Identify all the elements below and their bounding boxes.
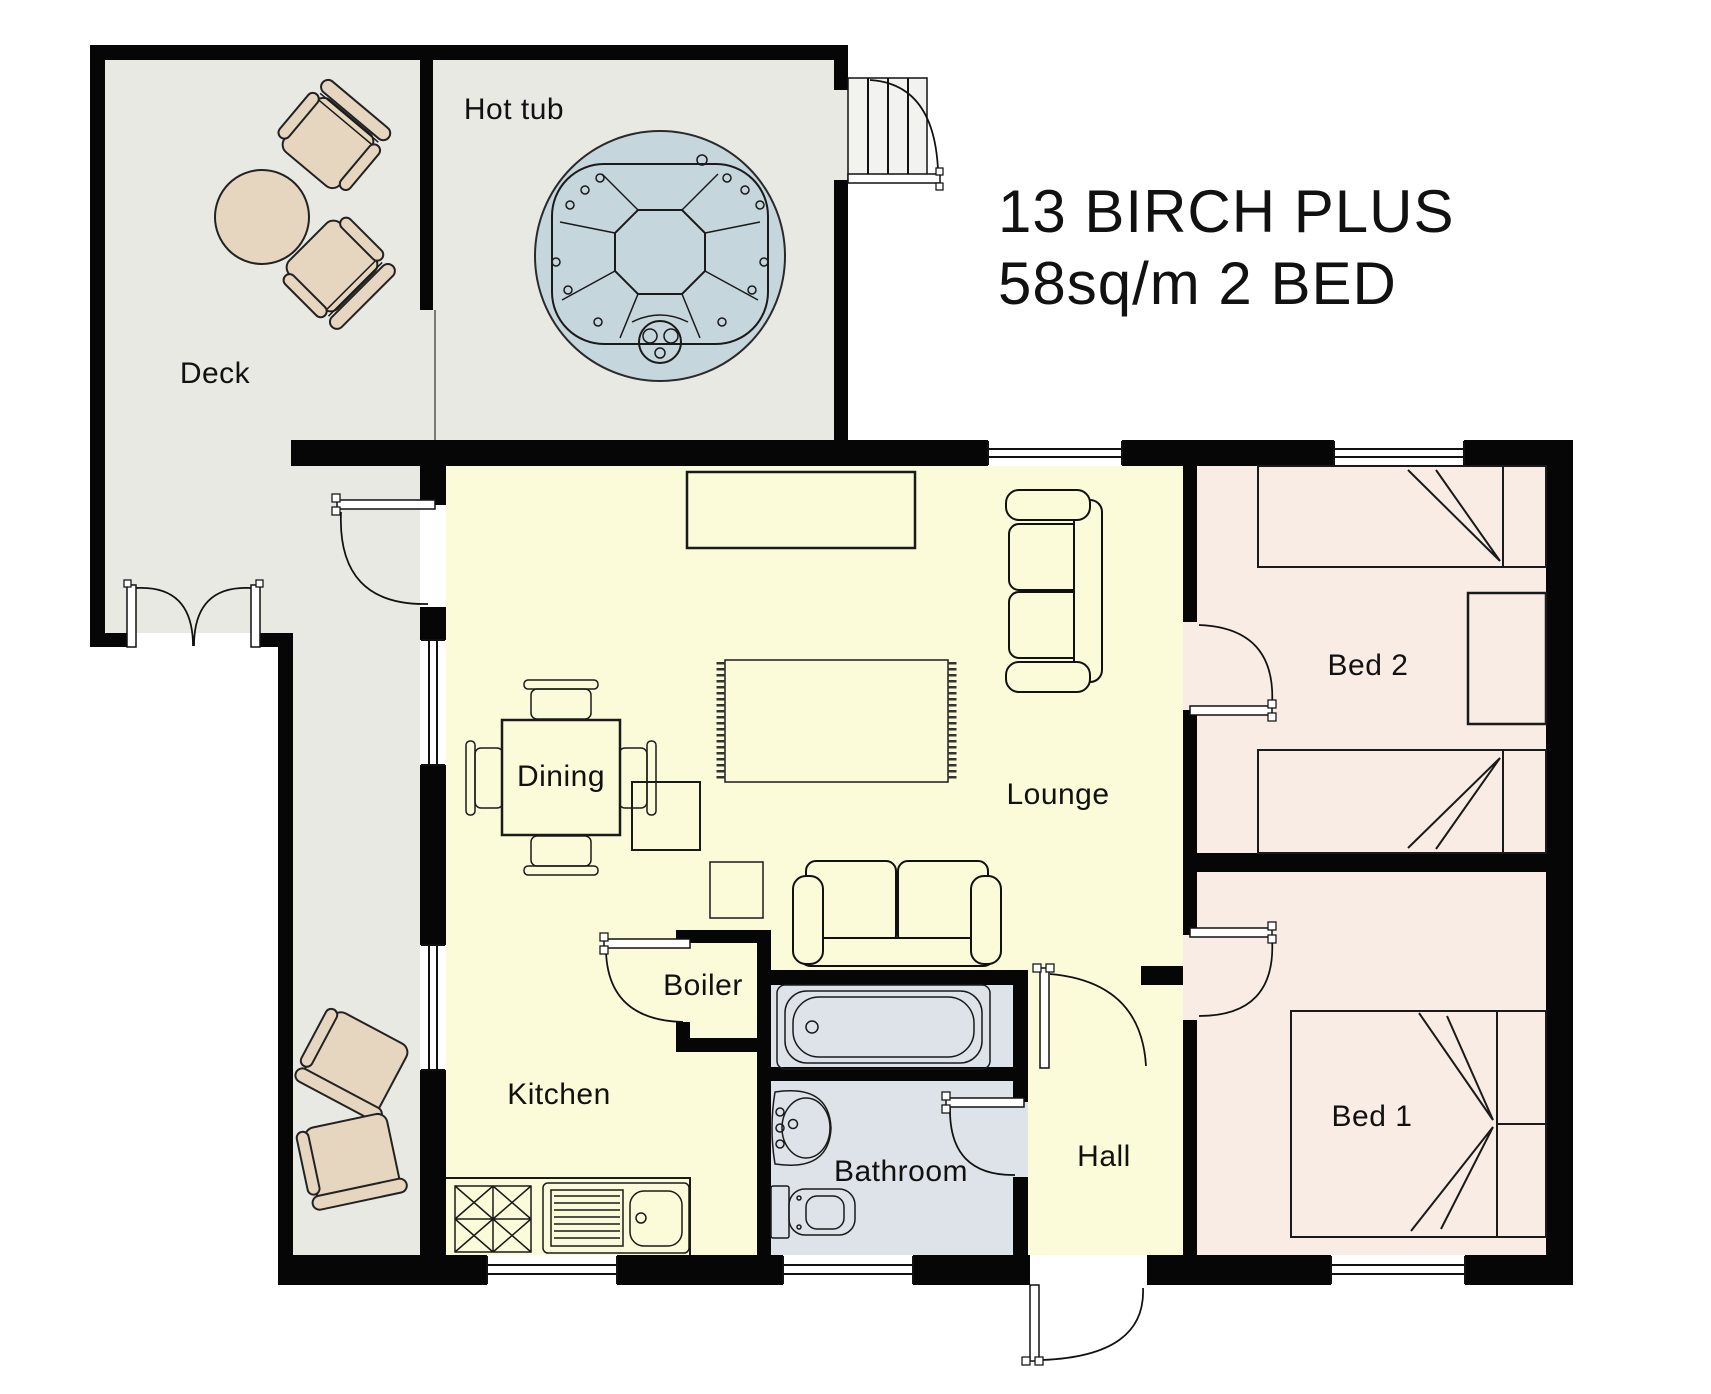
label-kitchen: Kitchen (507, 1078, 611, 1112)
plan-title-line1: 13 BIRCH PLUS (998, 176, 1455, 248)
label-bed1: Bed 1 (1332, 1100, 1413, 1134)
sofa-right (1006, 490, 1102, 692)
label-hall: Hall (1077, 1140, 1131, 1174)
window-lounge (988, 440, 1122, 466)
label-deck: Deck (180, 357, 250, 391)
window-bed1-south (1331, 1255, 1465, 1285)
label-boiler: Boiler (663, 969, 743, 1003)
window-kitchen-south (487, 1255, 617, 1285)
label-dining: Dining (517, 760, 605, 794)
floor-plan: 13 BIRCH PLUS 58sq/m 2 BED Hot tub Deck … (0, 0, 1711, 1394)
deck-table (215, 170, 309, 264)
hot-tub (535, 131, 785, 381)
window-bathroom-south (783, 1255, 913, 1285)
plan-title-line2: 58sq/m 2 BED (998, 248, 1455, 320)
window-kitchen-west-2 (420, 945, 446, 1070)
bathroom-floor (757, 970, 1028, 1269)
hob (455, 1186, 531, 1252)
label-lounge: Lounge (1006, 778, 1109, 812)
window-bed2 (1334, 440, 1464, 466)
entry-steps (848, 78, 927, 180)
front-door (1022, 1255, 1147, 1365)
label-bathroom: Bathroom (834, 1155, 968, 1189)
label-bed2: Bed 2 (1328, 649, 1409, 683)
sofa-two-seater (793, 861, 1001, 966)
plan-title: 13 BIRCH PLUS 58sq/m 2 BED (998, 176, 1455, 320)
label-hot-tub: Hot tub (464, 93, 564, 127)
window-kitchen-west-1 (420, 640, 446, 765)
